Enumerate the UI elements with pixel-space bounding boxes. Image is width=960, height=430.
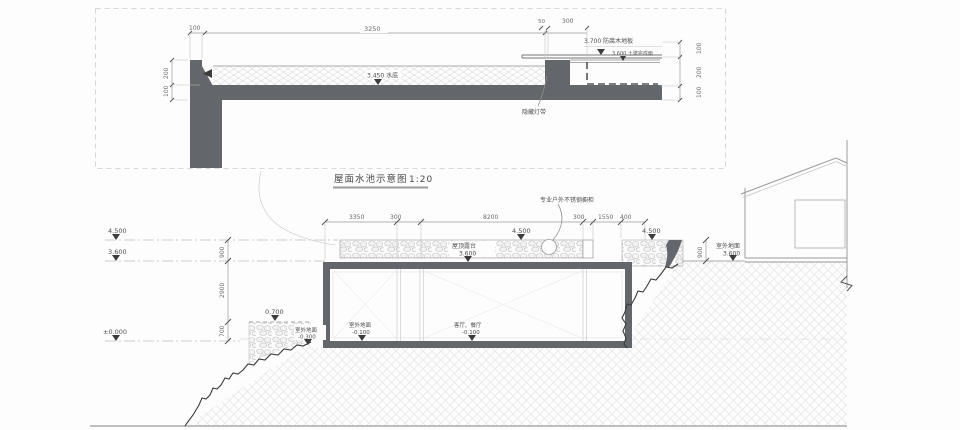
level-water-bottom: 3.450 水底 — [367, 72, 398, 80]
note-cabinet: 专业户外不锈钢橱柜 — [540, 196, 594, 204]
level-4500-terrace: 4.500 — [512, 227, 531, 235]
building-section: 4.500 3.600 ±0.000 900 2900 700 3350 300… — [90, 140, 852, 426]
detail-title: 屋面水池示意图 — [334, 173, 408, 185]
left-dim-chain: 900 2900 700 — [219, 237, 231, 344]
dim-900-right: 900 — [697, 246, 704, 258]
dim-8200: 8200 — [483, 214, 498, 221]
detail-callout-arc — [259, 171, 336, 245]
level-4500-right: 4.500 — [642, 227, 661, 235]
finish-surface-line — [570, 60, 660, 63]
dim-100-top: 100 — [189, 25, 201, 32]
pool-curb — [545, 60, 570, 87]
detail-scale: 1:20 — [409, 175, 433, 185]
triangle-0000 — [112, 335, 120, 341]
dim-300-top: 300 — [562, 18, 574, 25]
level-0000: ±0.000 — [103, 328, 127, 336]
dim-1550: 1550 — [598, 214, 613, 221]
dim-50: 50 — [538, 19, 545, 25]
house-window — [795, 200, 845, 248]
dim-300-a: 300 — [390, 214, 402, 221]
triangle-0700 — [271, 315, 279, 321]
level-deck: 3.700 防腐木地板 — [584, 37, 633, 45]
hidden-structure-dashed — [587, 62, 658, 84]
dim-ext-right — [660, 42, 680, 100]
level-4500-left: 4.500 — [108, 227, 127, 235]
pool-structural-slab — [202, 85, 662, 100]
level-finish: 3.600 土建完成面 — [612, 50, 653, 57]
architectural-drawing-sheet: 100 3250 50 300 200 100 100 200 100 3.70… — [0, 0, 960, 430]
triangle-ground-right — [729, 255, 737, 261]
dim-3350: 3350 — [349, 214, 364, 221]
indoor2-name: 客厅、餐厅 — [454, 321, 482, 329]
drawing-canvas: 100 3250 50 300 200 100 100 200 100 3.70… — [0, 0, 960, 430]
dim-900-left: 900 — [219, 246, 226, 258]
dim-100-r2: 100 — [696, 86, 703, 98]
dim-700: 700 — [219, 325, 226, 337]
house-roof-inner — [743, 162, 846, 198]
cabinet-sink-circle — [542, 240, 557, 255]
triangle-4500-terrace — [517, 234, 525, 240]
deck-level-triangle — [597, 49, 605, 55]
terrace-name: 屋顶露台 — [452, 242, 476, 250]
triangle-3600-left — [112, 255, 120, 261]
dim-100-left: 100 — [163, 85, 170, 97]
triangle-4500-right — [648, 234, 656, 240]
dim-2900: 2900 — [219, 283, 226, 298]
triangle-4500-left — [112, 234, 120, 240]
dim-200-r: 200 — [696, 66, 703, 78]
dim-300-b: 300 — [573, 214, 585, 221]
indoor1-name: 室外地面 — [349, 321, 372, 329]
triangle-terrace — [464, 256, 472, 262]
dim-3250: 3250 — [364, 25, 381, 33]
parapet-end-post — [583, 240, 593, 258]
dim-400: 400 — [620, 214, 632, 221]
dim-100-r1: 100 — [696, 42, 703, 54]
ground-left-name: 室外地面 — [295, 326, 318, 334]
dim-ticks — [188, 26, 589, 35]
note-hidden-light-strip: 隐藏灯带 — [522, 108, 546, 116]
level-0700: 0.700 — [265, 308, 284, 316]
dim-200-left: 200 — [163, 67, 170, 79]
ground-right-name: 室外地面 — [716, 242, 740, 250]
level-3600-left: 3.600 — [108, 248, 127, 256]
roof-pool-detail: 100 3250 50 300 200 100 100 200 100 3.70… — [96, 9, 726, 246]
